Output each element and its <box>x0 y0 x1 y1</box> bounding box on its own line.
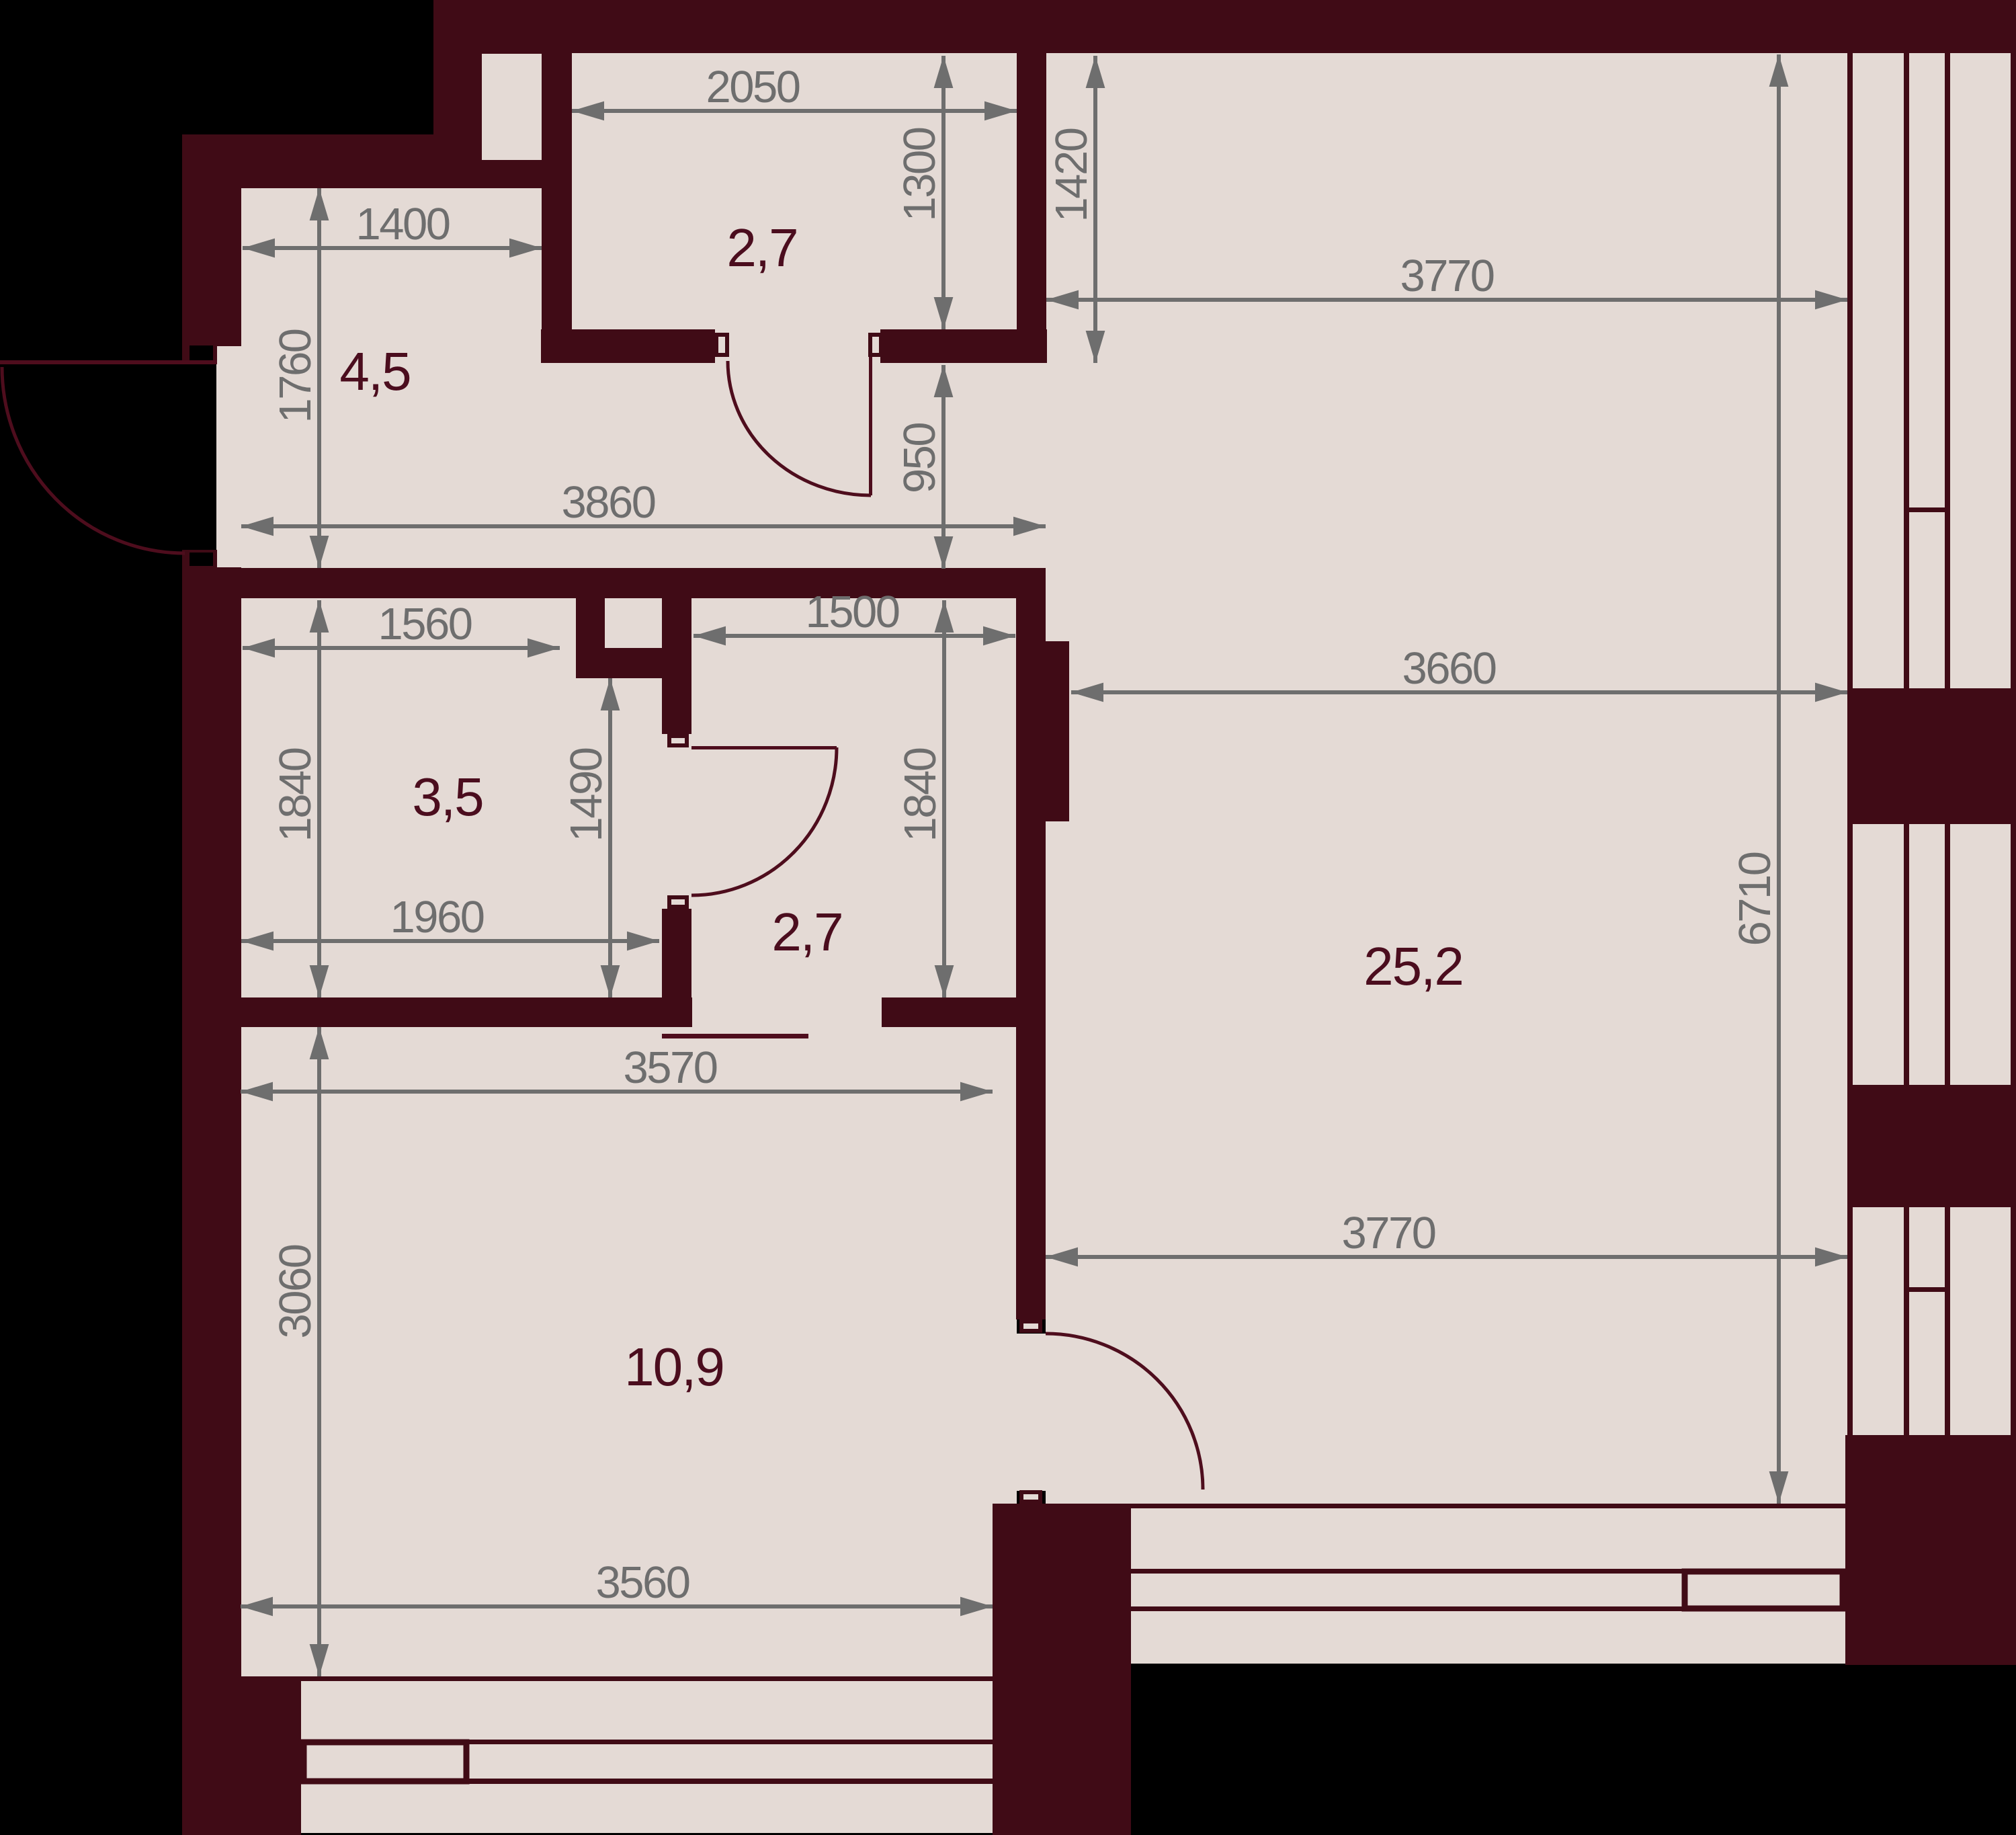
svg-text:1560: 1560 <box>378 599 471 649</box>
svg-text:1300: 1300 <box>894 128 945 221</box>
svg-text:1420: 1420 <box>1046 128 1097 222</box>
svg-text:3560: 3560 <box>595 1557 689 1608</box>
svg-text:3770: 3770 <box>1400 251 1493 301</box>
svg-text:3570: 3570 <box>623 1043 716 1093</box>
svg-text:10,9: 10,9 <box>624 1337 724 1397</box>
svg-text:1500: 1500 <box>805 587 898 637</box>
svg-text:3,5: 3,5 <box>412 767 482 827</box>
svg-text:1400: 1400 <box>355 199 449 249</box>
svg-text:1840: 1840 <box>270 748 321 842</box>
svg-text:3060: 3060 <box>270 1245 321 1338</box>
svg-text:1760: 1760 <box>270 329 321 423</box>
svg-text:1840: 1840 <box>895 748 946 842</box>
svg-text:3770: 3770 <box>1341 1208 1435 1258</box>
svg-text:3660: 3660 <box>1402 643 1495 694</box>
svg-text:3860: 3860 <box>561 477 655 528</box>
svg-text:4,5: 4,5 <box>339 341 410 401</box>
svg-text:2,7: 2,7 <box>726 218 797 278</box>
svg-text:25,2: 25,2 <box>1363 936 1463 996</box>
svg-text:950: 950 <box>894 423 945 494</box>
svg-text:6710: 6710 <box>1730 852 1780 946</box>
svg-text:2,7: 2,7 <box>771 902 842 962</box>
svg-text:1490: 1490 <box>561 748 612 842</box>
svg-text:2050: 2050 <box>706 62 799 112</box>
svg-text:1960: 1960 <box>390 892 483 942</box>
